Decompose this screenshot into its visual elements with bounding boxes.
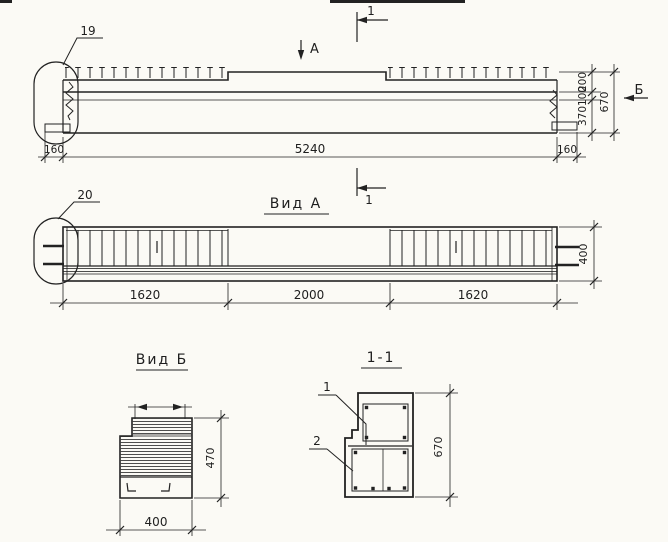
section-marker-top-label: 1 bbox=[367, 4, 375, 18]
protruding-bar-right bbox=[552, 122, 577, 130]
dim-end-width-label: 400 bbox=[145, 515, 168, 529]
view-b-marker: Б bbox=[624, 83, 648, 101]
section-marker-bottom-label: 1 bbox=[365, 193, 373, 207]
dim-heights-right: 200 100 370 670 bbox=[559, 64, 620, 141]
beam-outline bbox=[63, 72, 557, 133]
plan-view-title: Вид А bbox=[270, 196, 322, 212]
rebar-callout-2: 2 bbox=[309, 434, 353, 471]
section-arrow-icon bbox=[357, 17, 367, 23]
serrated-end-right bbox=[550, 90, 557, 118]
dim-section-height-label: 670 bbox=[432, 437, 445, 458]
dim-arrow-icon bbox=[173, 404, 183, 410]
anchor-mark-left bbox=[127, 483, 136, 491]
view-a-arrow-icon bbox=[298, 50, 304, 60]
drawing-sheet: 19 1 А 160 5240 160 bbox=[0, 0, 668, 542]
rebar-cage-upper bbox=[363, 404, 408, 441]
detail-balloon-19: 19 bbox=[34, 24, 103, 144]
technical-drawing: 19 1 А 160 5240 160 bbox=[0, 0, 668, 542]
dim-h-bottom-label: 370 bbox=[577, 106, 589, 126]
rebar-callout-1-label: 1 bbox=[323, 380, 331, 394]
end-view: Вид Б 400 bbox=[106, 352, 229, 536]
rebar-callout-2-label: 2 bbox=[313, 434, 321, 448]
dim-section-height: 670 bbox=[415, 384, 458, 507]
dim-seg-mid-label: 2000 bbox=[294, 288, 325, 302]
end-view-title: Вид Б bbox=[136, 352, 188, 368]
dim-seg-right-label: 1620 bbox=[458, 288, 489, 302]
view-b-marker-label: Б bbox=[635, 83, 644, 98]
stud-row-left bbox=[65, 67, 226, 80]
dim-total-length-label: 5240 bbox=[295, 142, 326, 156]
dim-plan-segments: 1620 2000 1620 bbox=[50, 283, 578, 310]
dim-end-top bbox=[128, 404, 192, 419]
dim-overhang-left-label: 160 bbox=[44, 144, 64, 156]
section-arrow-icon bbox=[357, 185, 367, 191]
end-block bbox=[120, 418, 192, 498]
dim-plan-width: 400 bbox=[559, 220, 602, 289]
dim-h-total-label: 670 bbox=[598, 92, 611, 113]
plan-view: Вид А 1 20 bbox=[34, 168, 602, 310]
dim-length-bottom: 160 5240 160 bbox=[38, 130, 586, 163]
rebar-cage-lower bbox=[352, 449, 408, 491]
elevation-view: 19 1 А 160 5240 160 bbox=[34, 4, 648, 163]
dim-end-height-label: 470 bbox=[204, 448, 217, 469]
dim-end-width: 400 bbox=[106, 500, 206, 536]
dim-h-mid-label: 100 bbox=[577, 86, 589, 106]
view-a-marker: А bbox=[298, 40, 319, 60]
serrated-end-left bbox=[66, 82, 73, 120]
dim-overhang-right-label: 160 bbox=[557, 144, 577, 156]
plan-end-bars-left bbox=[43, 246, 64, 264]
dim-arrow-icon bbox=[137, 404, 147, 410]
section-view: 1-1 1 2 bbox=[309, 350, 458, 507]
protruding-bar-left bbox=[45, 124, 70, 132]
dim-end-height: 470 bbox=[194, 410, 229, 507]
dim-plan-width-label: 400 bbox=[577, 244, 590, 265]
stud-row-right bbox=[388, 67, 555, 80]
section-marker-bottom: 1 bbox=[357, 168, 386, 207]
stirrup-zone-right bbox=[392, 230, 550, 266]
plan-end-bars-right bbox=[555, 247, 579, 265]
detail-callout-20-label: 20 bbox=[77, 188, 92, 202]
stirrup-zone-left bbox=[74, 230, 226, 266]
view-a-marker-label: А bbox=[310, 42, 319, 57]
section-view-title: 1-1 bbox=[367, 350, 396, 366]
anchor-mark-right bbox=[161, 483, 170, 491]
view-b-arrow-icon bbox=[624, 95, 634, 101]
section-marker-top: 1 bbox=[357, 4, 388, 42]
dim-seg-left-label: 1620 bbox=[130, 288, 161, 302]
detail-callout-19-label: 19 bbox=[80, 24, 95, 38]
